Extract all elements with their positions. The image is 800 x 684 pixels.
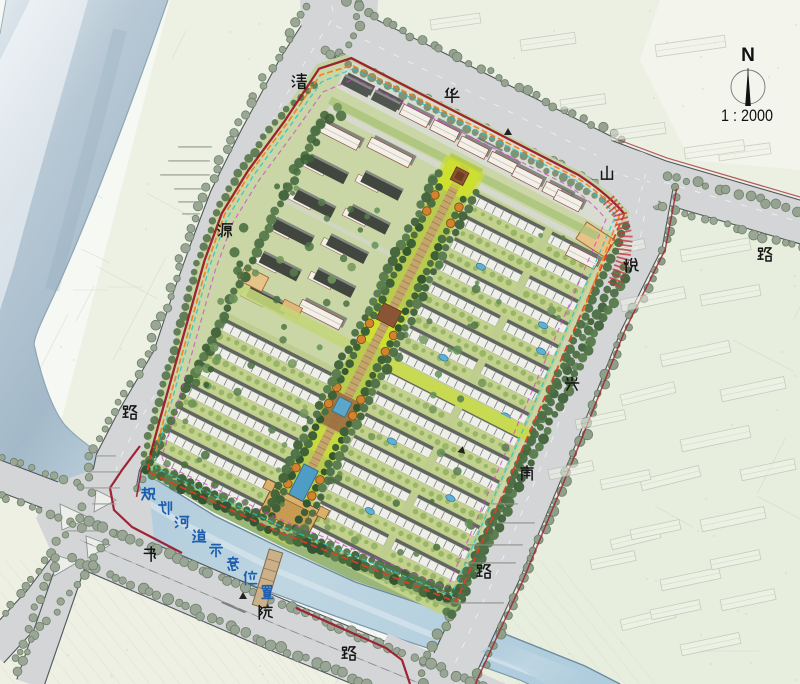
svg-text:1 : 2000: 1 : 2000	[721, 107, 773, 125]
svg-text:N: N	[741, 45, 755, 66]
